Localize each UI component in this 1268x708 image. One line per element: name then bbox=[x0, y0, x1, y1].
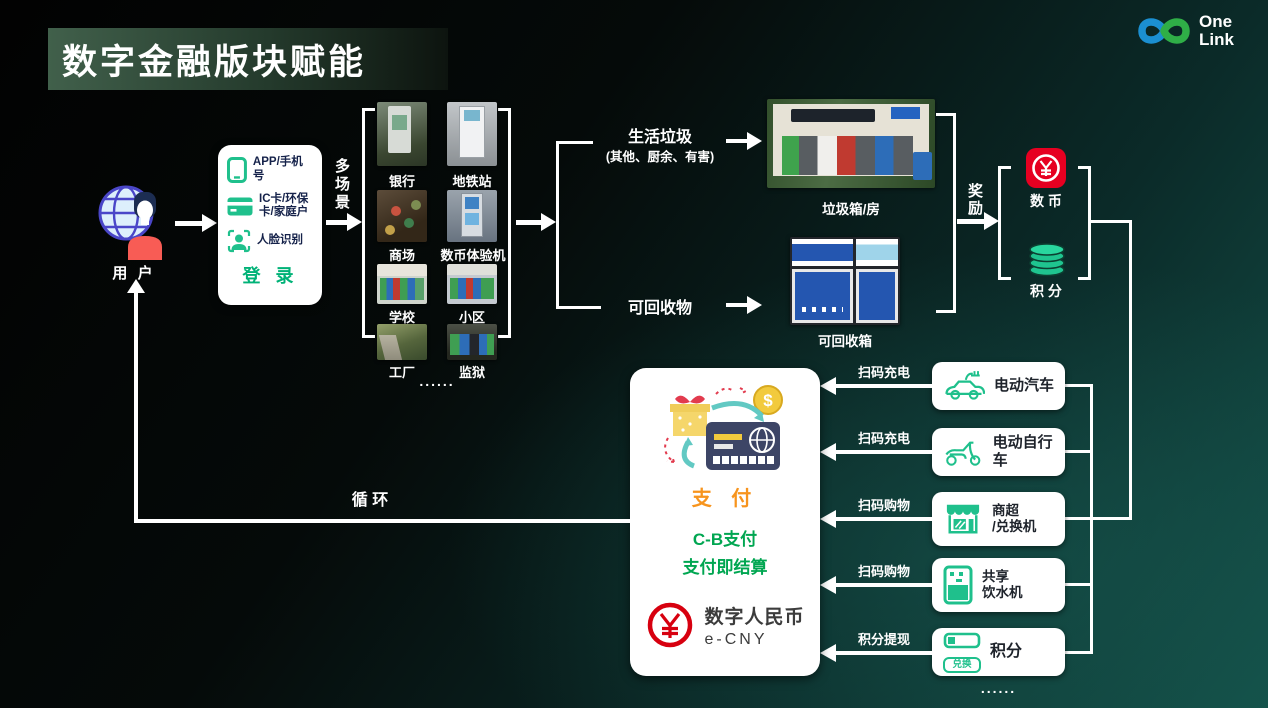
login-item-label: APP/手机号 bbox=[253, 156, 314, 184]
connector bbox=[1090, 517, 1132, 520]
arrowhead bbox=[820, 644, 836, 662]
login-item-label: IC卡/环保 卡/家庭户 bbox=[259, 193, 308, 221]
scene-label: 数币体验机 bbox=[430, 245, 516, 264]
bracket-stub bbox=[998, 166, 1011, 169]
arrow-binhouse bbox=[726, 139, 748, 143]
bracket-stub bbox=[936, 113, 956, 116]
reward-join-bracket bbox=[953, 113, 956, 313]
arrowhead bbox=[820, 576, 836, 594]
reward-label: 奖励 bbox=[964, 183, 985, 217]
cb-payment-line1: C-B支付 bbox=[693, 525, 757, 550]
bracket-stub bbox=[1078, 166, 1091, 169]
login-item-face: 人脸识别 bbox=[227, 229, 314, 253]
box-label: 电动自行车 bbox=[993, 434, 1065, 470]
connector-stub bbox=[1065, 450, 1092, 453]
scene-label: 地铁站 bbox=[437, 171, 507, 190]
arrow-label: 扫码购物 bbox=[836, 561, 932, 580]
login-card: APP/手机号 IC卡/环保 卡/家庭户 人脸识别 登 录 bbox=[218, 145, 322, 305]
box-store: 商超 /兑换机 bbox=[932, 492, 1065, 546]
face-recognition-icon bbox=[227, 229, 251, 253]
exchange-badge: 兑换 bbox=[943, 657, 981, 673]
reward-bracket-left bbox=[998, 166, 1001, 280]
household-waste-sub: (其他、厨余、有害) bbox=[577, 146, 743, 165]
recycle-box-label: 可回收箱 bbox=[790, 330, 900, 350]
points-exchange-icon: 兑换 bbox=[943, 632, 981, 673]
box-label: 共享 饮水机 bbox=[982, 569, 1023, 601]
ecny-logo: 数字人民币 e-CNY bbox=[645, 600, 804, 650]
onelink-logo: One Link bbox=[1136, 10, 1234, 52]
pay-label: 支 付 bbox=[692, 482, 759, 511]
scene-label: 商场 bbox=[367, 245, 437, 264]
page-title: 数字金融版块赋能 bbox=[62, 34, 366, 85]
scene-photo-community bbox=[447, 264, 497, 304]
bracket-stub bbox=[362, 108, 375, 111]
ev-car-icon bbox=[943, 369, 985, 403]
ev-bike-icon bbox=[943, 435, 984, 469]
box-label: 积分 bbox=[990, 642, 1022, 661]
scene-photo-bank bbox=[377, 102, 427, 166]
arrowhead bbox=[747, 132, 762, 150]
recyclable-label: 可回收物 bbox=[600, 294, 720, 318]
box-points: 兑换 积分 bbox=[932, 628, 1065, 676]
payment-panel: $ 支 付 C-B支付 支付即结算 数字人民币 bbox=[630, 368, 820, 676]
title-bar: 数字金融版块赋能 bbox=[48, 28, 448, 90]
arrow-shop-1 bbox=[836, 517, 932, 521]
arrow-label: 积分提现 bbox=[836, 629, 932, 648]
cb-payment-line2: 支付即结算 bbox=[683, 553, 768, 578]
box-water-dispenser: 共享 饮水机 bbox=[932, 558, 1065, 612]
arrow-charge-1 bbox=[836, 384, 932, 388]
cycle-label: 循 环 bbox=[330, 486, 410, 510]
scene-photo-factory bbox=[377, 324, 427, 360]
phone-icon bbox=[227, 157, 247, 183]
store-icon bbox=[943, 501, 983, 537]
scene-photo-prison bbox=[447, 324, 497, 360]
connector bbox=[1088, 220, 1132, 223]
arrowhead bbox=[820, 510, 836, 528]
scene-label: 银行 bbox=[367, 171, 437, 190]
arrowhead bbox=[541, 213, 556, 231]
cycle-line-vertical bbox=[134, 292, 138, 523]
bracket-stub bbox=[498, 108, 511, 111]
points-label: 积 分 bbox=[1014, 281, 1078, 301]
arrow-shop-2 bbox=[836, 583, 932, 587]
svg-text:$: $ bbox=[763, 391, 773, 410]
box-label: 电动汽车 bbox=[994, 377, 1054, 395]
reward-bracket-right bbox=[1088, 166, 1091, 280]
arrow-user-login bbox=[175, 221, 203, 226]
bracket-stub bbox=[936, 310, 956, 313]
box-ev-bike: 电动自行车 bbox=[932, 428, 1065, 476]
points-coins-icon bbox=[1028, 243, 1066, 282]
connector-stub bbox=[1065, 583, 1092, 586]
login-item-card: IC卡/环保 卡/家庭户 bbox=[227, 193, 314, 221]
arrow-split bbox=[516, 220, 542, 225]
arrowhead bbox=[820, 443, 836, 461]
bracket-stub bbox=[498, 335, 511, 338]
arrowhead bbox=[984, 212, 999, 230]
arrowhead bbox=[127, 279, 145, 293]
arrow-label: 扫码购物 bbox=[836, 495, 932, 514]
arrowhead bbox=[347, 213, 362, 231]
water-dispenser-icon bbox=[943, 565, 973, 605]
bracket-stub bbox=[556, 306, 601, 309]
cycle-line-horizontal bbox=[134, 519, 630, 523]
connector bbox=[1129, 220, 1132, 519]
household-waste-label: 生活垃圾 bbox=[585, 123, 735, 147]
arrow-label: 扫码充电 bbox=[836, 362, 932, 381]
arrow-scene bbox=[326, 220, 348, 225]
split-bracket bbox=[556, 141, 559, 309]
arrow-charge-2 bbox=[836, 450, 932, 454]
arrowhead bbox=[820, 377, 836, 395]
infinity-logo-icon bbox=[1136, 10, 1192, 52]
connector-stub bbox=[1065, 651, 1092, 654]
arrow-reward bbox=[957, 219, 985, 224]
arrow-recyclebox bbox=[726, 303, 748, 307]
bracket-stub bbox=[998, 277, 1011, 280]
scene-photo-kiosk bbox=[447, 190, 497, 242]
scene-photo-metro bbox=[447, 102, 497, 166]
ic-card-icon bbox=[227, 197, 253, 216]
bracket-stub bbox=[1078, 277, 1091, 280]
recycle-box-photo bbox=[790, 237, 900, 325]
grid-bracket-right bbox=[508, 108, 511, 338]
scenes-more: ...... bbox=[407, 373, 467, 389]
arrowhead bbox=[747, 296, 762, 314]
ecny-text: 数字人民币 e-CNY bbox=[704, 602, 804, 649]
slide: 数字金融版块赋能 One Link 用 户 bbox=[0, 0, 1268, 708]
login-item-app: APP/手机号 bbox=[227, 156, 314, 184]
bracket-stub bbox=[362, 335, 375, 338]
connector-stub bbox=[1065, 384, 1092, 387]
login-button: 登 录 bbox=[227, 262, 314, 288]
box-label: 商超 /兑换机 bbox=[992, 503, 1036, 535]
login-item-label: 人脸识别 bbox=[257, 234, 303, 248]
ecny-circle-icon bbox=[645, 600, 695, 650]
multi-scene-label: 多场景 bbox=[331, 158, 352, 212]
digital-currency-icon bbox=[1026, 148, 1066, 188]
bin-house-photo bbox=[767, 99, 935, 188]
box-ev-car: 电动汽车 bbox=[932, 362, 1065, 410]
digital-currency-label: 数 币 bbox=[1014, 191, 1078, 211]
arrow-withdraw bbox=[836, 651, 932, 655]
connector-stub bbox=[1065, 517, 1092, 520]
scene-photo-mall bbox=[377, 190, 427, 242]
boxes-more: ...... bbox=[932, 680, 1065, 696]
scene-photo-school bbox=[377, 264, 427, 304]
arrow-label: 扫码充电 bbox=[836, 428, 932, 447]
user-icon bbox=[96, 180, 172, 260]
bin-house-label: 垃圾箱/房 bbox=[767, 198, 935, 218]
logo-text: One Link bbox=[1199, 13, 1234, 49]
arrowhead bbox=[202, 214, 217, 232]
grid-bracket-left bbox=[362, 108, 365, 338]
payment-illustration: $ bbox=[654, 380, 796, 478]
